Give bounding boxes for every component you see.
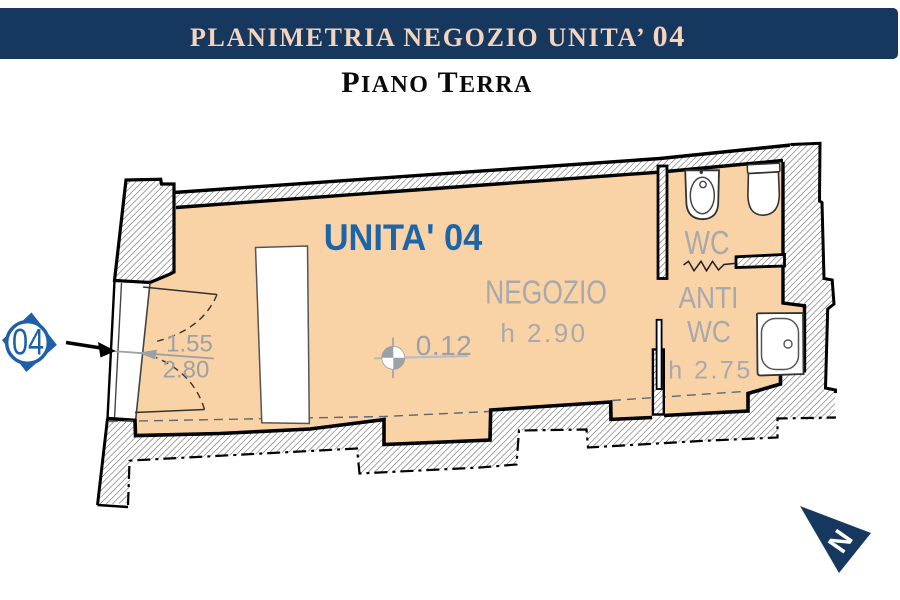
svg-text:0.12: 0.12 xyxy=(416,330,473,361)
svg-text:NEGOZIO: NEGOZIO xyxy=(485,275,607,311)
svg-text:PLANIMETRIA NEGOZIO UNITA’ 04: PLANIMETRIA NEGOZIO UNITA’ 04 xyxy=(190,20,686,53)
svg-text:04: 04 xyxy=(12,322,44,363)
svg-text:PIANO TERRA: PIANO TERRA xyxy=(341,66,532,99)
svg-text:1.55: 1.55 xyxy=(166,331,213,358)
svg-text:h 2.75: h 2.75 xyxy=(668,357,753,385)
svg-text:2.80: 2.80 xyxy=(163,357,210,384)
svg-text:ANTI: ANTI xyxy=(679,281,739,315)
svg-text:WC: WC xyxy=(687,315,731,349)
svg-text:WC: WC xyxy=(684,226,729,262)
svg-text:h 2.90: h 2.90 xyxy=(500,318,587,348)
svg-text:UNITA' 04: UNITA' 04 xyxy=(324,217,483,258)
